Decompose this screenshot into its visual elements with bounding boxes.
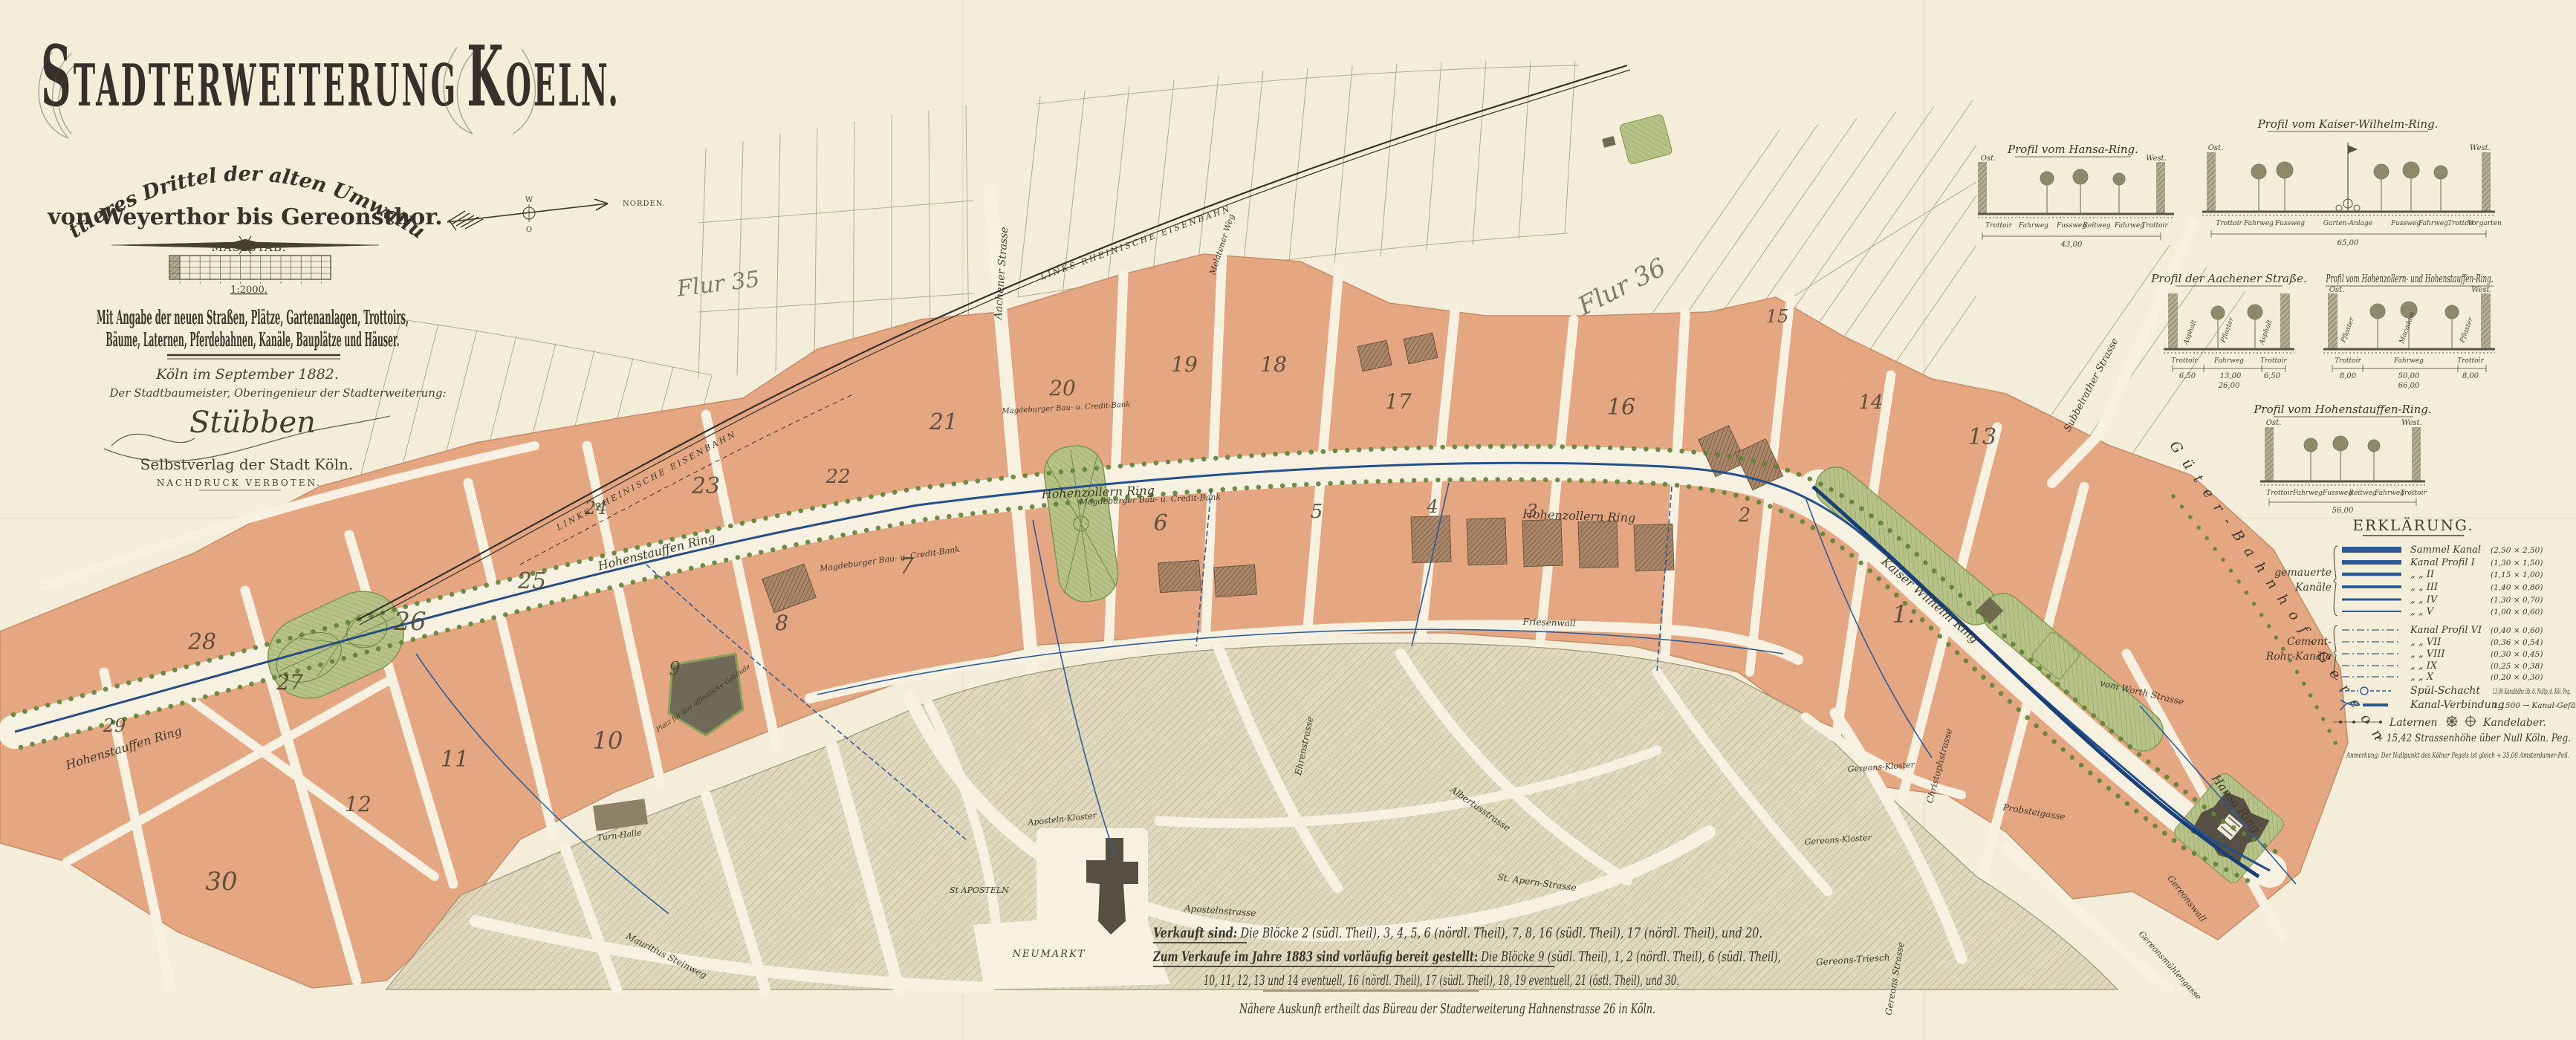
svg-text:13,00 Kanalhöhe üb. d. Nullp: 13,00 Kanalhöhe üb. d. Nullp. d. Köl. Pe… (2493, 687, 2571, 696)
compass-east-label: O (526, 226, 532, 234)
svg-text:Fahrweg: Fahrweg (2018, 222, 2048, 230)
svg-text:Kanal-Verbindung: Kanal-Verbindung (2410, 699, 2505, 711)
block-number: 5 (1311, 501, 1323, 523)
block-number: 12 (345, 792, 372, 816)
svg-text:Cement-: Cement- (2287, 636, 2332, 648)
svg-text:6,50: 6,50 (2264, 372, 2281, 380)
svg-text:Reitweg: Reitweg (2082, 222, 2111, 230)
svg-text:„ „ III: „ „ III (2410, 582, 2439, 593)
svg-text:Trottoir: Trottoir (2171, 357, 2198, 365)
svg-text:(0,25 × 0,38): (0,25 × 0,38) (2491, 662, 2543, 671)
svg-text:Spül-Schacht: Spül-Schacht (2410, 685, 2480, 697)
block-number: 19 (1171, 352, 1198, 377)
description-line2: Bäume, Laternen, Pferdebahnen, Kanäle, B… (106, 329, 400, 351)
svg-text:Fahrweg: Fahrweg (2292, 490, 2323, 497)
svg-text:West.: West. (2471, 286, 2492, 294)
block-number: 2 (1738, 504, 1751, 527)
svg-text:66,00: 66,00 (2398, 382, 2420, 390)
dateline: Köln im September 1882. (155, 366, 339, 383)
svg-text:Ost.: Ost. (1981, 155, 1996, 163)
block-number: 11 (441, 747, 469, 773)
map-sheet: 1.23456789101112131415161718192021222324… (0, 0, 2576, 1040)
svg-text:(1,40 × 0,80): (1,40 × 0,80) (2491, 583, 2543, 592)
block-number: 8 (775, 611, 788, 635)
svg-text:„ „ VII: „ „ VII (2410, 637, 2442, 648)
publisher-line: Selbstverlag der Stadt Köln. (140, 455, 354, 473)
compass-west-label: W (525, 196, 533, 204)
block-number: 26 (393, 607, 426, 637)
block-number: 14 (1858, 391, 1883, 414)
svg-text:Fahrweg: Fahrweg (2243, 220, 2274, 227)
block-number: 9 (669, 658, 680, 679)
anmerkung-note: Anmerkung: Der Nullpunkt des Kölner Pege… (2346, 751, 2569, 760)
svg-text:„ „ VIII: „ „ VIII (2410, 649, 2445, 660)
block-number: 13 (1968, 424, 1996, 450)
svg-text:1:1500 → Kanal-Gefälle.: 1:1500 → Kanal-Gefälle. (2493, 701, 2576, 710)
block-number: 30 (205, 867, 237, 897)
svg-text:West.: West. (2470, 144, 2491, 152)
svg-text:(0,20 × 0,30): (0,20 × 0,30) (2491, 673, 2543, 682)
svg-text:Kandelaber.: Kandelaber. (2482, 717, 2546, 729)
svg-text:Kanal Profil VI: Kanal Profil VI (2410, 625, 2482, 636)
svg-text:Vorgarten: Vorgarten (2468, 220, 2502, 227)
svg-text:„ „ IX: „ „ IX (2410, 660, 2438, 672)
block-number: 18 (1260, 352, 1287, 377)
street-label: St APOSTELN (950, 885, 1009, 895)
description-line1: Mit Angabe der neuen Straßen, Plätze, Ga… (97, 307, 409, 329)
block-number: 15 (1766, 306, 1789, 327)
svg-text:Reitweg: Reitweg (2348, 490, 2377, 497)
forsale-line2: 10, 11, 12, 13 und 14 eventuell, 16 (nör… (1204, 972, 1679, 989)
svg-text:Profil vom Hohenstauffen-Ring.: Profil vom Hohenstauffen-Ring. (2253, 403, 2431, 416)
svg-text:(1,30 × 1,50): (1,30 × 1,50) (2491, 559, 2543, 568)
scale-ratio: 1:2000. (230, 285, 267, 296)
scale-label: MASSSTAB. (211, 241, 286, 254)
svg-text:Fahrweg: Fahrweg (2213, 357, 2244, 365)
compass-north-label: NORDEN. (623, 200, 666, 208)
svg-text:Fussweg: Fussweg (2390, 220, 2421, 227)
svg-text:„ „ V: „ „ V (2410, 606, 2435, 617)
svg-text:Sammel Kanal: Sammel Kanal (2410, 545, 2481, 556)
block-number: 29 (103, 715, 126, 736)
svg-text:Profil vom Hohenzollern- und H: Profil vom Hohenzollern- und Hohenstauff… (2326, 272, 2494, 285)
svg-text:„ „ X: „ „ X (2410, 672, 2434, 683)
svg-text:West.: West. (2146, 155, 2167, 163)
svg-text:Garten-Anlage: Garten-Anlage (2323, 220, 2372, 227)
block-number: 16 (1607, 394, 1635, 420)
block-number: 1. (1892, 600, 1915, 628)
svg-text:gemauerte: gemauerte (2274, 567, 2332, 579)
svg-text:„ „ II: „ „ II (2410, 569, 2435, 580)
svg-text:(0,40 × 0,60): (0,40 × 0,60) (2491, 626, 2543, 635)
svg-text:Trottoir: Trottoir (2335, 357, 2361, 365)
block-number: 28 (187, 629, 216, 655)
block-number: 27 (276, 670, 303, 695)
svg-text:43,00: 43,00 (2060, 241, 2083, 249)
svg-text:Ost.: Ost. (2329, 286, 2345, 294)
svg-text:Ost.: Ost. (2266, 419, 2282, 427)
svg-text:Fussweg: Fussweg (2322, 490, 2352, 497)
block-number: 20 (1048, 376, 1076, 400)
svg-text:Trottoir: Trottoir (1985, 222, 2012, 230)
svg-text:(0,30 × 0,45): (0,30 × 0,45) (2491, 650, 2543, 659)
svg-text:Ost.: Ost. (2208, 144, 2224, 152)
svg-text:Rohr-Kanäle: Rohr-Kanäle (2265, 651, 2332, 663)
svg-text:Kanäle: Kanäle (2294, 582, 2332, 594)
svg-text:Fussweg: Fussweg (2274, 220, 2305, 227)
block-number: 10 (593, 727, 623, 755)
block-number: 6 (1153, 510, 1167, 536)
copyright-line: NACHDRUCK VERBOTEN. (157, 478, 322, 488)
block-number: 4 (1426, 496, 1438, 517)
svg-text:Kanal Profil I: Kanal Profil I (2410, 557, 2476, 568)
info-line: Nähere Auskunft ertheilt das Büreau der … (1239, 1001, 1655, 1017)
svg-text:Fahrweg: Fahrweg (2418, 220, 2448, 227)
svg-text:(2,50 × 2,50): (2,50 × 2,50) (2491, 546, 2543, 555)
svg-text:„ „ IV: „ „ IV (2410, 594, 2439, 605)
svg-text:Trottoir: Trottoir (2216, 220, 2242, 227)
svg-text:Trottoir: Trottoir (2266, 490, 2293, 497)
svg-text:Fahrweg: Fahrweg (2114, 222, 2144, 230)
map-canvas: 1.23456789101112131415161718192021222324… (0, 0, 2576, 1040)
svg-text:Profil vom Hansa-Ring.: Profil vom Hansa-Ring. (2007, 143, 2138, 156)
svg-text:Trottoir: Trottoir (2141, 222, 2168, 230)
block-number: 22 (825, 466, 850, 488)
svg-text:50,00: 50,00 (2398, 372, 2420, 380)
svg-text:Fussweg: Fussweg (2056, 222, 2086, 230)
svg-text:Laternen: Laternen (2389, 717, 2438, 729)
block-number: 17 (1385, 389, 1412, 414)
sold-line: Verkauft sind: Die Blöcke 2 (südl. Theil… (1153, 925, 1762, 941)
block-number: 21 (929, 409, 958, 435)
svg-text:8,00: 8,00 (2340, 372, 2357, 380)
strassenhoehe-note: + 15,42 Strassenhöhe über Null Köln. Peg… (2376, 732, 2571, 744)
street-label: Friesenwall (1522, 617, 1576, 629)
forsale-line1: Zum Verkaufe im Jahre 1883 sind vorläufi… (1152, 949, 1781, 965)
block-number: 23 (691, 473, 720, 499)
svg-text:(1,15 × 1,00): (1,15 × 1,00) (2491, 571, 2543, 579)
svg-text:56,00: 56,00 (2332, 507, 2354, 515)
signatory-role: Der Stadtbaumeister, Oberingenieur der S… (108, 386, 446, 400)
block-number: 25 (517, 568, 546, 594)
svg-text:Trottoir: Trottoir (2400, 490, 2427, 497)
subtitle-line2: von Weyerthor bis Gereonsthor. (47, 204, 442, 230)
legend-title: ERKLÄRUNG. (2352, 516, 2473, 534)
svg-text:(0,36 × 0,54): (0,36 × 0,54) (2491, 638, 2543, 647)
svg-text:8,00: 8,00 (2462, 372, 2479, 380)
svg-text:Fahrweg: Fahrweg (2393, 357, 2424, 365)
svg-text:26,00: 26,00 (2218, 382, 2240, 390)
svg-text:Trottoir: Trottoir (2260, 357, 2287, 365)
svg-text:Profil vom Kaiser-Wilhelm-Ring: Profil vom Kaiser-Wilhelm-Ring. (2257, 117, 2439, 131)
svg-text:65,00: 65,00 (2337, 239, 2359, 247)
svg-text:(1,30 × 0,70): (1,30 × 0,70) (2491, 596, 2543, 605)
svg-text:13,00: 13,00 (2220, 372, 2242, 380)
svg-text:6,50: 6,50 (2179, 372, 2196, 380)
svg-text:Profil der Aachener Straße.: Profil der Aachener Straße. (2150, 272, 2307, 285)
svg-text:West.: West. (2401, 419, 2422, 427)
street-label: NEUMARKT (1012, 949, 1086, 960)
svg-text:Trottoir: Trottoir (2457, 357, 2484, 365)
svg-text:(1,00 × 0,60): (1,00 × 0,60) (2491, 608, 2543, 617)
